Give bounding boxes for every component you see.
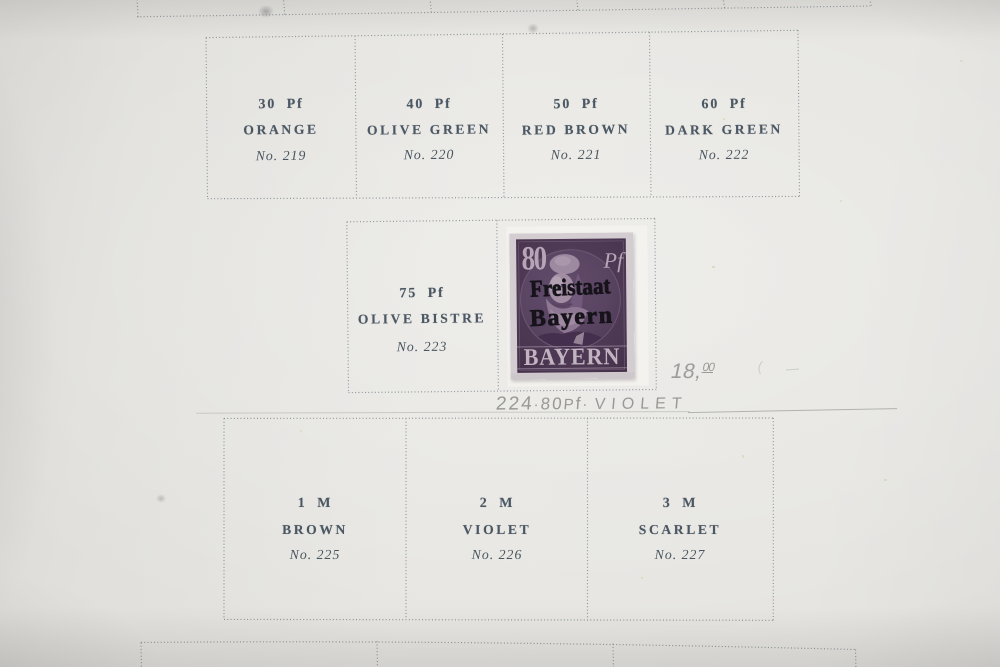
svg-text:Pf: Pf <box>602 247 626 272</box>
svg-text:80: 80 <box>521 239 547 277</box>
svg-text:Freistaat: Freistaat <box>529 272 611 302</box>
svg-text:Bayern: Bayern <box>529 302 614 332</box>
svg-text:BAYERN: BAYERN <box>524 342 621 370</box>
